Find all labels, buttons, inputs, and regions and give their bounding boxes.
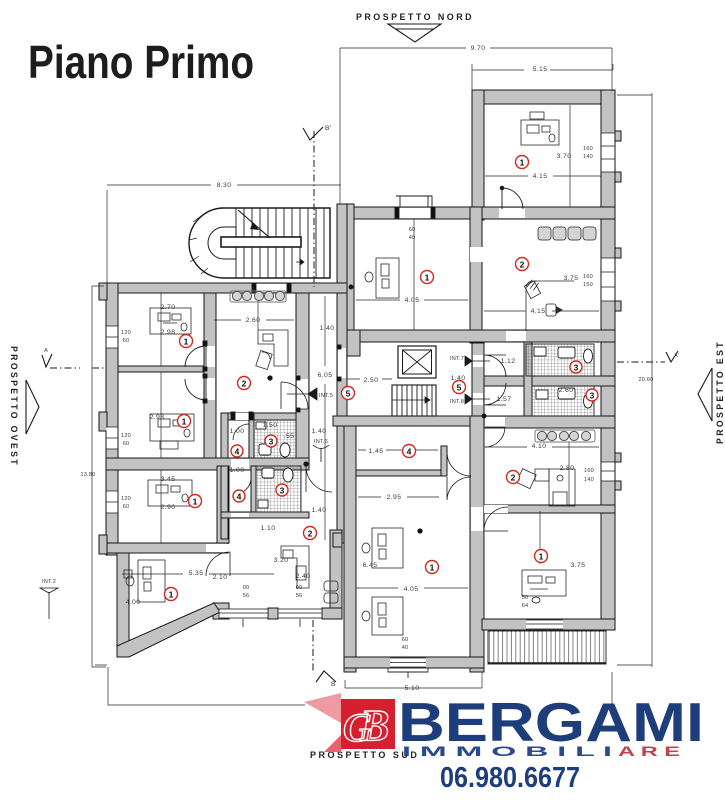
svg-text:1.40: 1.40	[320, 325, 335, 332]
svg-text:6.05: 6.05	[318, 372, 333, 379]
svg-text:140: 140	[584, 477, 594, 483]
svg-text:2.60: 2.60	[246, 317, 261, 324]
svg-text:1.50: 1.50	[263, 422, 278, 429]
svg-text:2.10: 2.10	[213, 574, 228, 581]
svg-text:1: 1	[184, 337, 189, 347]
svg-text:2.90: 2.90	[161, 504, 176, 511]
svg-text:INT.8: INT.8	[450, 399, 464, 405]
svg-text:3.20: 3.20	[274, 557, 289, 564]
svg-text:160: 160	[583, 274, 593, 280]
svg-text:40: 40	[402, 645, 409, 651]
svg-text:PROSPETTO EST: PROSPETTO EST	[715, 340, 725, 444]
svg-text:2: 2	[242, 379, 247, 389]
svg-text:4: 4	[235, 447, 240, 457]
svg-text:4.05: 4.05	[404, 586, 419, 593]
svg-text:INT.6: INT.6	[314, 439, 328, 445]
svg-text:2.60: 2.60	[559, 387, 574, 394]
svg-text:1.57: 1.57	[497, 396, 512, 403]
svg-text:6.45: 6.45	[363, 562, 378, 569]
svg-text:120: 120	[121, 496, 131, 502]
svg-text:00: 00	[243, 585, 250, 591]
svg-text:1: 1	[520, 158, 525, 168]
svg-text:40: 40	[409, 235, 416, 241]
svg-text:56: 56	[243, 593, 250, 599]
svg-text:1.40: 1.40	[312, 507, 327, 514]
svg-text:2.98: 2.98	[150, 414, 165, 421]
svg-text:3.45: 3.45	[161, 476, 176, 483]
svg-text:4: 4	[407, 447, 412, 457]
svg-text:1.00: 1.00	[230, 467, 245, 474]
svg-text:PROSPETTO OVEST: PROSPETTO OVEST	[9, 346, 19, 467]
svg-text:2.50: 2.50	[364, 377, 379, 384]
svg-text:3.75: 3.75	[571, 562, 586, 569]
svg-text:120: 120	[121, 433, 131, 439]
svg-text:4.05: 4.05	[405, 297, 420, 304]
svg-text:1: 1	[425, 273, 430, 283]
svg-text:160: 160	[584, 468, 594, 474]
svg-text:140: 140	[583, 154, 593, 160]
svg-text:2.98: 2.98	[161, 329, 176, 336]
svg-text:5: 5	[457, 383, 462, 393]
svg-text:50: 50	[522, 595, 529, 601]
svg-text:INT.2: INT.2	[42, 579, 56, 585]
svg-text:60: 60	[409, 227, 416, 233]
svg-text:64: 64	[522, 603, 529, 609]
svg-text:3: 3	[269, 437, 274, 447]
svg-text:1.12: 1.12	[501, 358, 516, 365]
svg-text:A R E: A R E	[618, 743, 680, 759]
svg-text:1.00: 1.00	[230, 428, 245, 435]
svg-text:60: 60	[123, 338, 130, 344]
svg-text:2.95: 2.95	[387, 494, 402, 501]
svg-text:I M M O B I L I: I M M O B I L I	[402, 743, 612, 759]
svg-text:INT.7: INT.7	[450, 356, 464, 362]
svg-text:4.15: 4.15	[533, 173, 548, 180]
svg-text:INT.5: INT.5	[319, 393, 333, 399]
svg-text:4.15: 4.15	[531, 308, 546, 315]
svg-text:1: 1	[430, 563, 435, 573]
svg-text:1: 1	[193, 497, 198, 507]
svg-text:150: 150	[583, 282, 593, 288]
svg-text:1: 1	[182, 417, 187, 427]
svg-text:00: 00	[296, 585, 303, 591]
svg-text:A': A'	[674, 353, 679, 359]
svg-text:2.70: 2.70	[161, 304, 176, 311]
svg-text:3.75: 3.75	[564, 275, 579, 282]
svg-text:2.80: 2.80	[560, 465, 575, 472]
svg-text:2: 2	[520, 260, 525, 270]
svg-text:60: 60	[123, 504, 130, 510]
svg-text:1.40: 1.40	[312, 428, 327, 435]
svg-text:3: 3	[574, 363, 579, 373]
svg-text:120: 120	[121, 330, 131, 336]
svg-text:56: 56	[296, 593, 303, 599]
svg-text:5.35: 5.35	[189, 570, 204, 577]
svg-text:B: B	[331, 681, 336, 688]
svg-text:8.30: 8.30	[217, 182, 232, 189]
svg-text:Piano Primo: Piano Primo	[28, 36, 254, 88]
svg-text:20.60: 20.60	[639, 377, 654, 383]
svg-text:2: 2	[511, 473, 516, 483]
svg-text:1: 1	[539, 552, 544, 562]
svg-text:3: 3	[590, 391, 595, 401]
svg-text:.55: .55	[284, 433, 295, 440]
svg-text:3: 3	[280, 486, 285, 496]
svg-text:13.80: 13.80	[81, 472, 96, 478]
svg-text:9.70: 9.70	[471, 45, 486, 52]
svg-text:60: 60	[402, 637, 409, 643]
svg-text:60: 60	[123, 441, 130, 447]
svg-text:2: 2	[308, 529, 313, 539]
svg-text:4: 4	[237, 492, 242, 502]
svg-text:160: 160	[583, 146, 593, 152]
svg-text:1: 1	[169, 590, 174, 600]
svg-text:B': B'	[325, 125, 332, 132]
svg-text:1.10: 1.10	[261, 525, 276, 532]
svg-text:4.10: 4.10	[532, 443, 547, 450]
svg-text:B: B	[359, 701, 389, 750]
svg-text:1.45: 1.45	[369, 448, 384, 455]
svg-text:PROSPETTO NORD: PROSPETTO NORD	[356, 12, 474, 22]
svg-text:2.40: 2.40	[296, 573, 311, 580]
svg-text:06.980.6677: 06.980.6677	[440, 762, 580, 794]
svg-text:4.00: 4.00	[126, 599, 141, 606]
svg-text:3.70: 3.70	[557, 153, 572, 160]
svg-text:A: A	[44, 348, 48, 354]
svg-text:5: 5	[346, 389, 351, 399]
svg-text:5.15: 5.15	[533, 66, 548, 73]
